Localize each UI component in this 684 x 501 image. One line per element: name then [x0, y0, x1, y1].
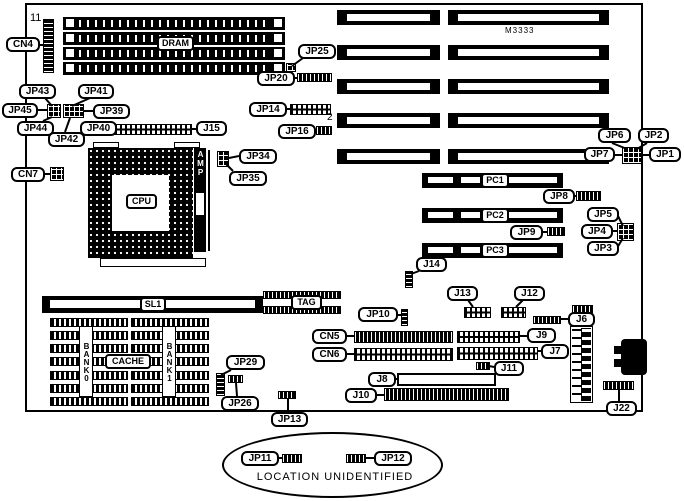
- callout-jp11: JP11: [241, 451, 279, 466]
- callout-cn5: CN5: [312, 329, 347, 344]
- callout-j6: J6: [568, 312, 595, 327]
- callout-jp12: JP12: [374, 451, 412, 466]
- bank0-label: BANK0: [79, 326, 93, 397]
- callout-jp14: JP14: [249, 102, 287, 117]
- callout-jp41: JP41: [78, 84, 114, 99]
- callout-jp1: JP1: [649, 147, 681, 162]
- dram-label: DRAM: [157, 36, 194, 51]
- callout-jp42: JP42: [48, 132, 85, 147]
- tag-label: TAG: [291, 295, 322, 310]
- callout-j15: J15: [196, 121, 227, 136]
- callout-jp25: JP25: [298, 44, 336, 59]
- callout-jp26: JP26: [221, 396, 259, 411]
- callout-j14: J14: [416, 257, 447, 272]
- location-note: LOCATION UNIDENTIFIED: [240, 471, 430, 483]
- callout-jp40: JP40: [80, 121, 117, 136]
- callout-jp34: JP34: [239, 149, 277, 164]
- callout-jp13: JP13: [271, 412, 308, 427]
- callout-j11: J11: [494, 361, 524, 376]
- callout-j13: J13: [447, 286, 478, 301]
- callout-j7: J7: [541, 344, 569, 359]
- callout-cn4: CN4: [6, 37, 40, 52]
- callout-jp6: JP6: [598, 128, 631, 143]
- callout-cn7: CN7: [11, 167, 45, 182]
- callout-jp35: JP35: [229, 171, 267, 186]
- bank1-label: BANK1: [162, 326, 176, 397]
- callout-jp29: JP29: [226, 355, 265, 370]
- callout-jp5: JP5: [587, 207, 619, 222]
- callout-j10: J10: [345, 388, 377, 403]
- callout-j22: J22: [606, 401, 637, 416]
- pc1-label: PC1: [481, 173, 509, 188]
- callout-jp20: JP20: [257, 71, 295, 86]
- callout-cn6: CN6: [312, 347, 347, 362]
- callout-jp8: JP8: [543, 189, 575, 204]
- callout-jp9: JP9: [510, 225, 543, 240]
- pc2-label: PC2: [481, 208, 509, 223]
- callout-jp39: JP39: [93, 104, 130, 119]
- cpu-label: CPU: [126, 194, 157, 209]
- motherboard-diagram: 11 DRAM M3333 CPU AMP 2: [0, 0, 684, 501]
- jp14-pin2-label: 2: [327, 112, 333, 123]
- callout-jp3: JP3: [587, 241, 619, 256]
- callout-j12: J12: [514, 286, 545, 301]
- callout-jp7: JP7: [584, 147, 615, 162]
- pin1-label: 11: [30, 12, 41, 24]
- callout-jp16: JP16: [278, 124, 316, 139]
- callout-jp43: JP43: [19, 84, 56, 99]
- callout-j9: J9: [527, 328, 556, 343]
- callout-jp45: JP45: [2, 103, 38, 118]
- cache-label: CACHE: [105, 354, 151, 369]
- callout-jp2: JP2: [638, 128, 669, 143]
- leader-lines: [0, 0, 684, 501]
- board-model-label: M3333: [505, 26, 534, 35]
- callout-jp4: JP4: [581, 224, 613, 239]
- callout-jp10: JP10: [358, 307, 398, 322]
- callout-j8: J8: [368, 372, 396, 387]
- pc3-label: PC3: [481, 243, 509, 258]
- sl1-label: SL1: [140, 297, 166, 312]
